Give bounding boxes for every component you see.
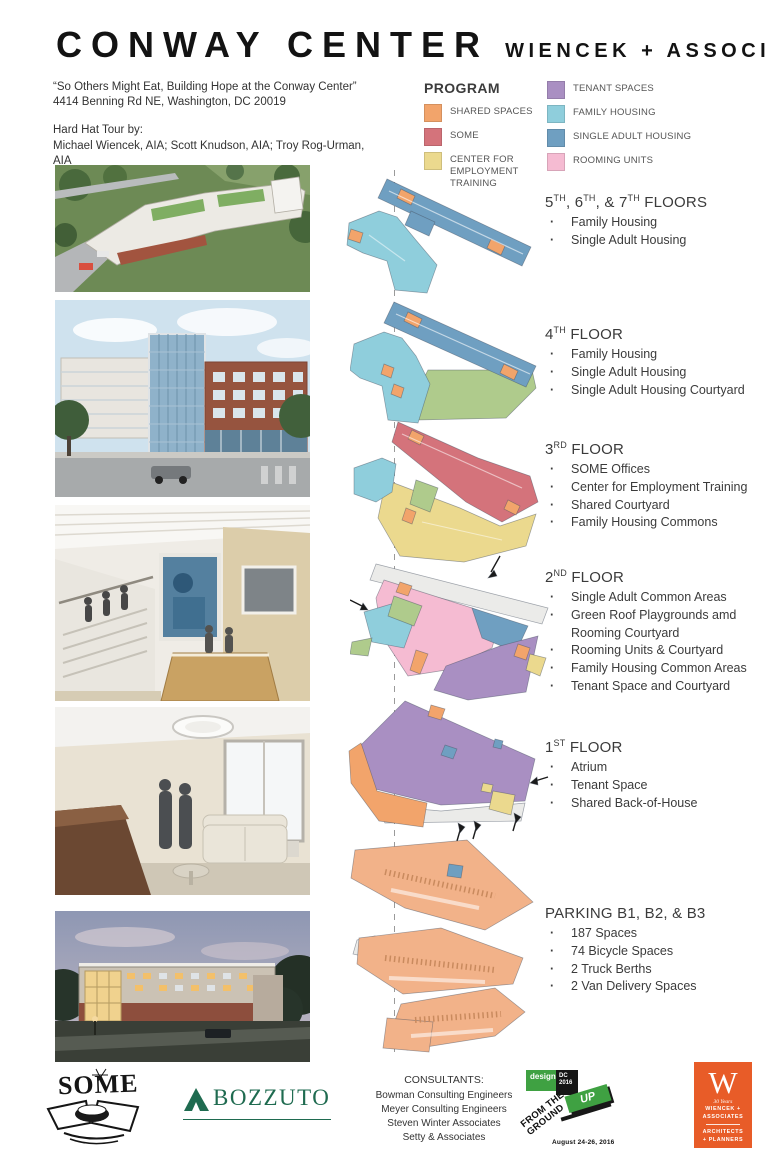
wiencek-badge: W 30 Years WIENCEK + ASSOCIATES ARCHITEC… [694,1062,752,1148]
floor-bullet: Single Adult Housing [545,232,765,250]
floor-bullet: Atrium [545,759,765,777]
floor-title: PARKING B1, B2, & B3 [545,905,765,922]
floor-title: 2ND FLOOR [545,568,765,586]
consultant-name: Meyer Consulting Engineers [366,1103,522,1117]
bozzuto-wordmark: BOZZUTO [213,1085,330,1111]
from-the-ground-text: FROM THE GROUND [519,1090,572,1138]
consultant-name: Setty & Associates [366,1131,522,1145]
floor-section-5-6-7: 5TH, 6TH, & 7TH FLOORS Family Housing Si… [545,193,765,250]
header: CONWAY CENTER WIENCEK + ASSOCIATES [56,24,760,66]
bozzuto-triangle-icon [183,1085,210,1112]
floor-title: 1ST FLOOR [545,738,765,756]
floor-bullet: 187 Spaces [545,925,765,943]
badge-divider [706,1124,740,1125]
legend-swatch-shared [424,104,442,122]
floor-bullets: Single Adult Common Areas Green Roof Pla… [545,589,765,696]
wiencek-w-letter: W [694,1067,752,1098]
floor-section-4: 4TH FLOOR Family Housing Single Adult Ho… [545,325,765,399]
floor-bullets: Family Housing Single Adult Housing [545,214,765,250]
floor-bullet: Family Housing Commons [545,514,765,532]
plan-floor-3 [352,418,547,563]
floor-bullet: 2 Truck Berths [545,961,765,979]
floor-bullet: SOME Offices [545,461,765,479]
consultant-name: Steven Winter Associates [366,1117,522,1131]
floor-section-3: 3RD FLOOR SOME Offices Center for Employ… [545,440,765,532]
legend-swatch-some [424,128,442,146]
designdc-badge: design [526,1070,556,1091]
photo-atrium-interior [55,505,310,701]
plan-floor-2 [350,552,550,704]
bozzuto-underline [183,1119,331,1120]
consultant-name: Bowman Consulting Engineers [366,1089,522,1103]
legend-swatch-rooming [547,153,565,171]
floor-bullets: 187 Spaces 74 Bicycle Spaces 2 Truck Ber… [545,925,765,996]
floor-bullet: Tenant Space and Courtyard [545,678,765,696]
legend-swatch-tenant [547,81,565,99]
floor-bullet: Center for Employment Training [545,479,765,497]
floor-bullet: Rooming Units & Courtyard [545,642,765,660]
photo-aerial-rendering [55,165,310,292]
floor-bullet: Green Roof Playgrounds amd Rooming Court… [545,607,765,643]
legend-item: SHARED SPACES [424,104,542,122]
plan-floor-1 [345,695,550,843]
floor-bullet: 2 Van Delivery Spaces [545,978,765,996]
floor-title: 4TH FLOOR [545,325,765,343]
floor-title: 5TH, 6TH, & 7TH FLOORS [545,193,765,211]
photo-unit-interior [55,707,310,895]
project-quote: “So Others Might Eat, Building Hope at t… [53,80,383,95]
floor-bullet: Shared Courtyard [545,497,765,515]
plan-parking-b1-b2-b3 [345,838,545,1063]
floor-bullet: 74 Bicycle Spaces [545,943,765,961]
from-the-ground-up-logo: design DC 2016 UP FROM THE GROUND August… [522,1062,624,1152]
plan-floor-4 [350,292,545,427]
floor-bullet: Single Adult Housing [545,364,765,382]
floor-bullet: Shared Back-of-House [545,795,765,813]
floor-bullet: Family Housing Common Areas [545,660,765,678]
program-legend: PROGRAM SHARED SPACES SOME CENTER FOR EM… [424,80,764,104]
legend-swatch-family [547,105,565,123]
plan-floors-5-7 [345,163,545,295]
bozzuto-logo: BOZZUTO [183,1082,335,1122]
legend-swatch-single [547,129,565,147]
floor-title: 3RD FLOOR [545,440,765,458]
floor-bullet: Single Adult Common Areas [545,589,765,607]
page-title: CONWAY CENTER [56,24,489,66]
legend-item: ROOMING UNITS [547,153,747,171]
floor-bullets: SOME Offices Center for Employment Train… [545,461,765,532]
floor-bullet: Family Housing [545,214,765,232]
legend-item: SINGLE ADULT HOUSING [547,129,747,147]
legend-item: TENANT SPACES [547,81,747,99]
floor-section-parking: PARKING B1, B2, & B3 187 Spaces 74 Bicyc… [545,905,765,996]
legend-column-2: TENANT SPACES FAMILY HOUSING SINGLE ADUL… [547,81,747,177]
consultants-block: CONSULTANTS: Bowman Consulting Engineers… [366,1073,522,1146]
floor-bullet: Tenant Space [545,777,765,795]
consultants-title: CONSULTANTS: [366,1073,522,1088]
presentation-board: CONWAY CENTER WIENCEK + ASSOCIATES “So O… [0,0,768,1152]
floor-bullets: Atrium Tenant Space Shared Back-of-House [545,759,765,812]
some-logo: SOME [44,1067,146,1149]
floor-bullets: Family Housing Single Adult Housing Sing… [545,346,765,399]
floor-section-1: 1ST FLOOR Atrium Tenant Space Shared Bac… [545,738,765,812]
floor-bullet: Family Housing [545,346,765,364]
photo-dusk-rendering [55,911,310,1062]
firm-name: WIENCEK + ASSOCIATES [505,40,768,63]
legend-item: FAMILY HOUSING [547,105,747,123]
project-address: 4414 Benning Rd NE, Washington, DC 20019 [53,95,383,110]
photo-street-rendering [55,300,310,497]
event-date: August 24-26, 2016 [552,1139,615,1146]
floor-bullet: Single Adult Housing Courtyard [545,382,765,400]
tour-label: Hard Hat Tour by: [53,123,383,138]
legend-item: SOME [424,128,542,146]
floor-section-2: 2ND FLOOR Single Adult Common Areas Gree… [545,568,765,696]
